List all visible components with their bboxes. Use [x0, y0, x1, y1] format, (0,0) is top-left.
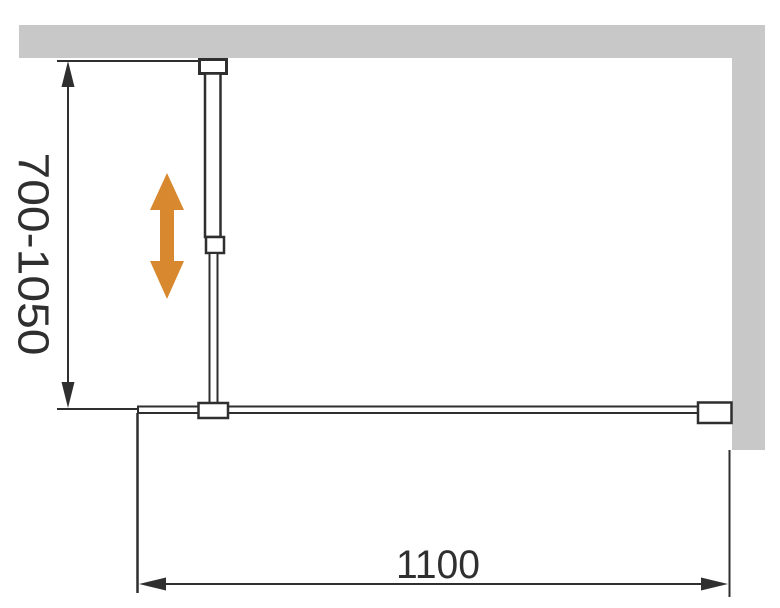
arrowhead-up-icon: [62, 61, 75, 87]
height-range-label: 700-1050: [9, 153, 58, 356]
arrowhead-down-icon: [62, 382, 75, 408]
support-bar: [200, 60, 227, 405]
dimension-diagram: 700-1050 1100: [0, 0, 780, 608]
diagram-svg: 700-1050 1100: [0, 0, 780, 608]
wall-right: [732, 25, 765, 450]
wall-top: [19, 25, 765, 58]
wall-bracket: [698, 403, 732, 424]
arrowhead-left-icon: [139, 578, 166, 591]
width-dimension: 1100: [139, 450, 730, 597]
width-label: 1100: [396, 543, 480, 587]
support-bar-inner-rod: [210, 253, 218, 404]
vertical-adjust-arrow-icon: [150, 173, 184, 299]
support-bar-outer-tube: [205, 74, 221, 238]
ceiling-mount: [200, 60, 227, 74]
arrowhead-right-icon: [701, 578, 728, 591]
glass-clamp-bracket: [199, 403, 229, 418]
support-bar-connector: [206, 237, 224, 253]
